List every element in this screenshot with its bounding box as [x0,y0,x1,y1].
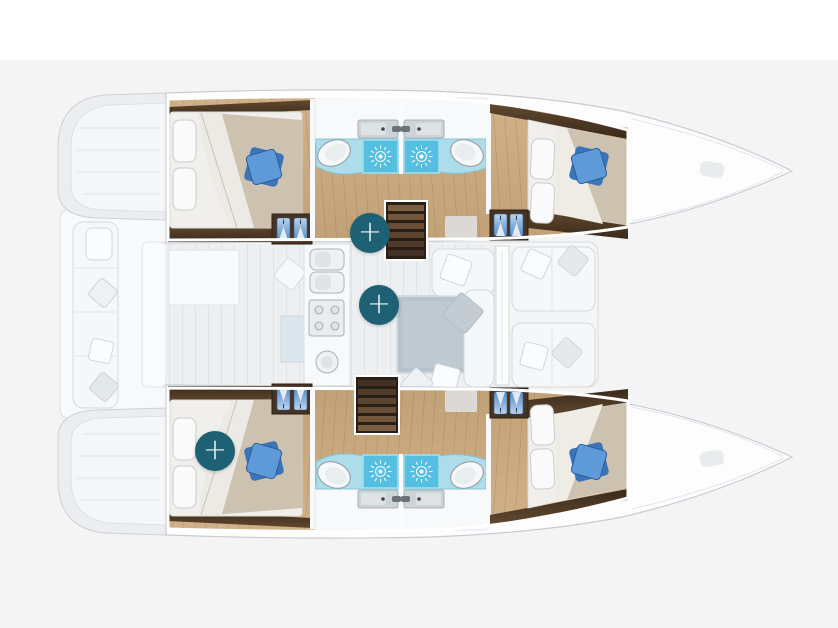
stove-icon [309,300,344,336]
port-companionway-stairs [385,201,427,260]
pillow [88,338,114,364]
boat-floorplan-illustration [0,0,838,628]
hotspot-port-hull-button[interactable]: + [350,213,390,253]
plus-icon: + [358,217,382,246]
starboard-hull [58,380,792,538]
aft-door-wall [142,242,166,387]
starboard-companionway-stairs [355,376,399,434]
galley [304,244,350,386]
plus-icon: + [203,435,227,464]
plus-icon: + [367,289,391,318]
floorplan-canvas: + + + [0,0,838,628]
pillow [86,228,112,260]
hotspot-saloon-button[interactable]: + [359,285,399,325]
chart-seat [169,250,239,305]
hotspot-starboard-aft-cabin-button[interactable]: + [195,431,235,471]
floorplan-page: + + + [0,0,838,628]
